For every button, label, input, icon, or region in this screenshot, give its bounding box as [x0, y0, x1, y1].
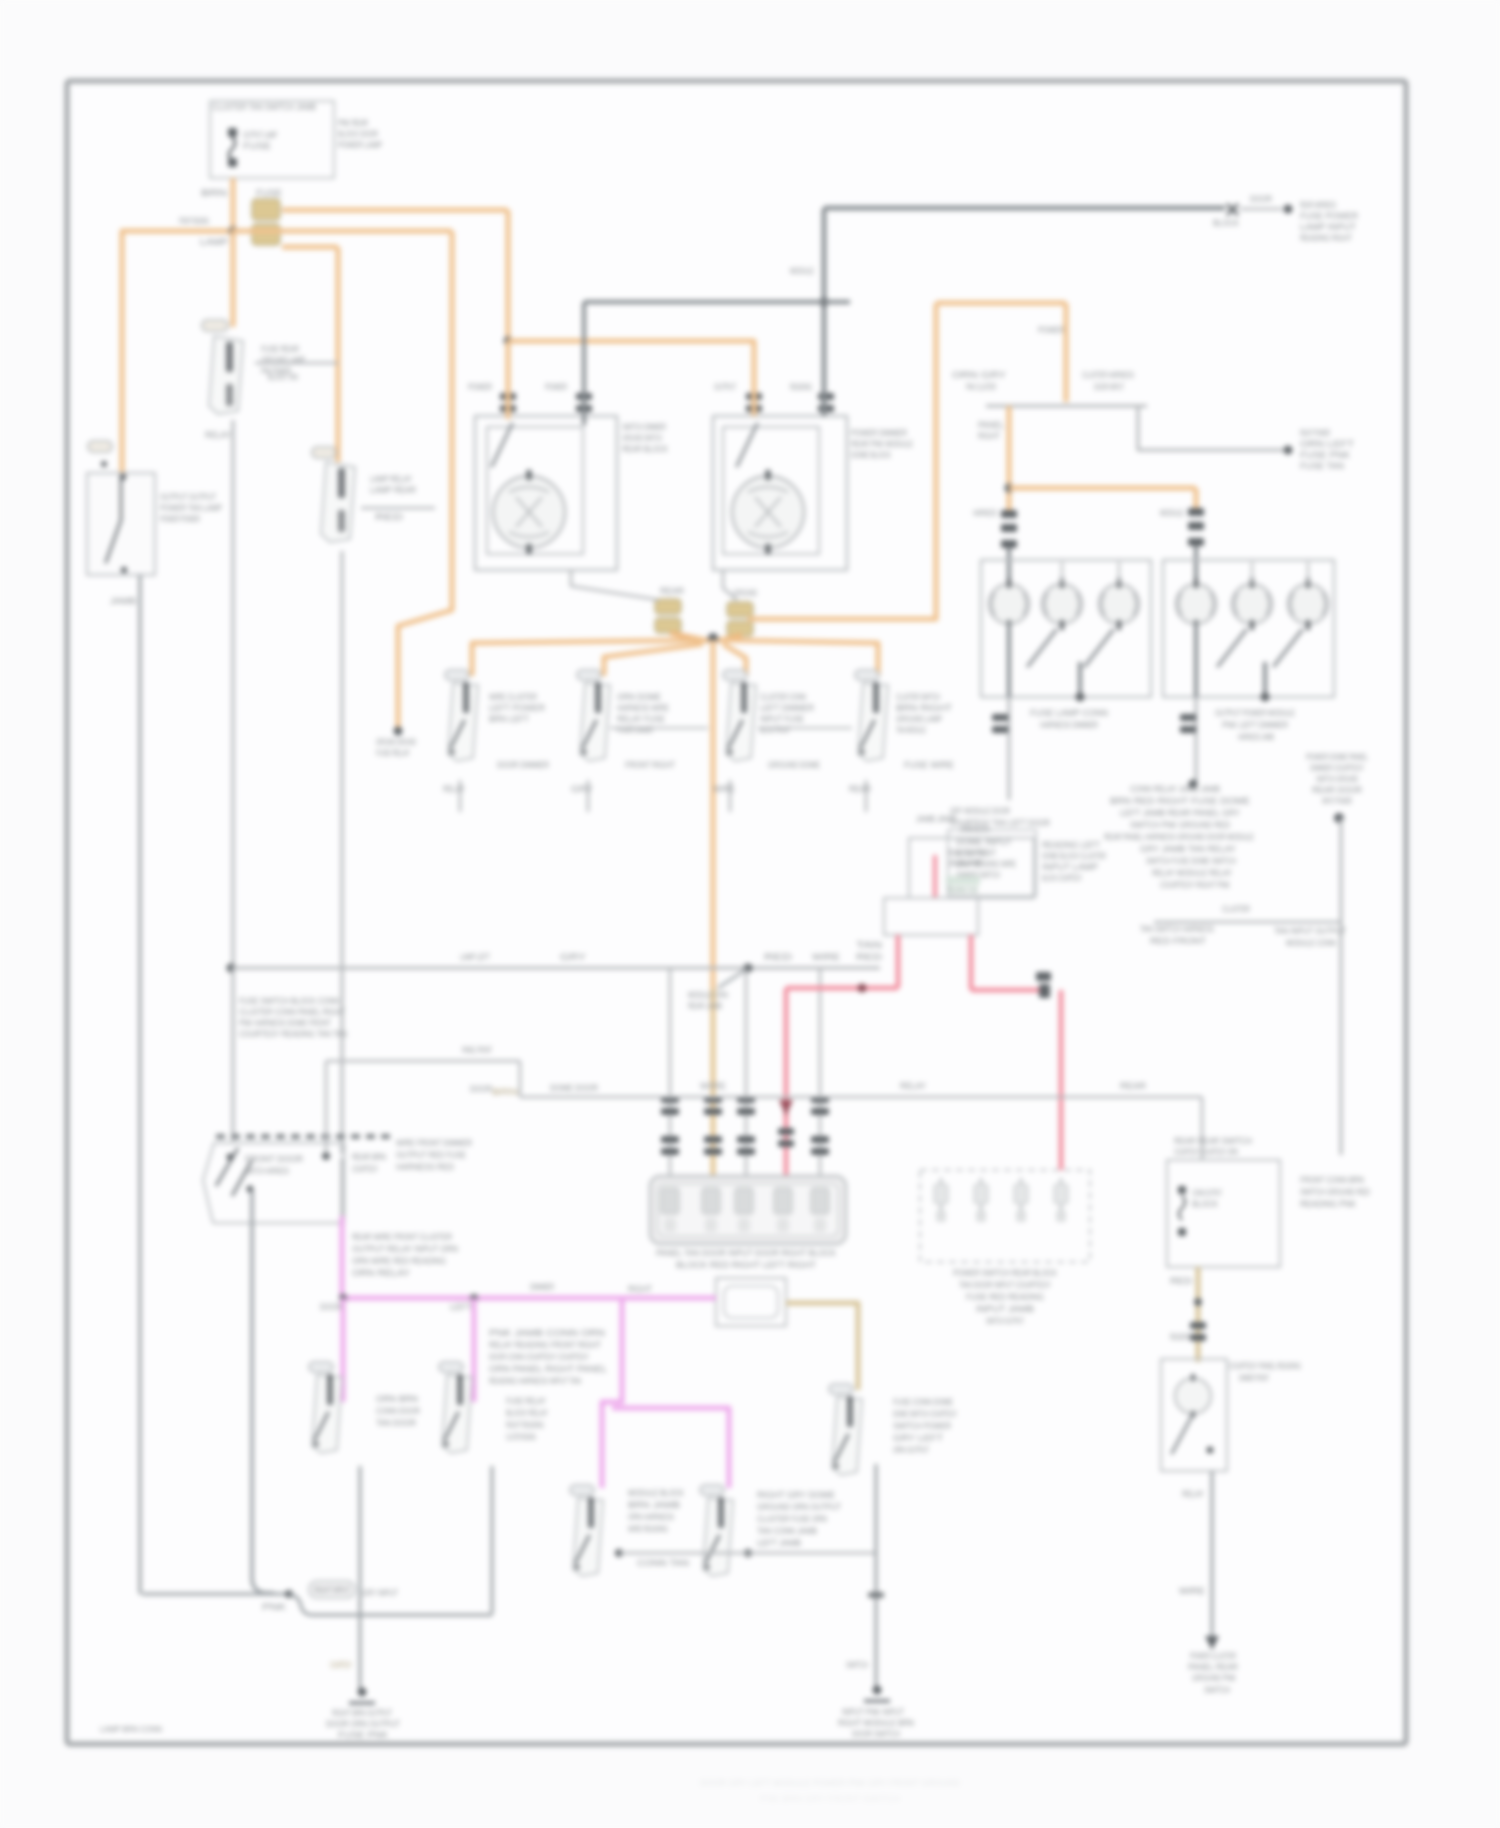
svg-text:FUSE RELAY: FUSE RELAY — [376, 748, 410, 758]
svg-text:COURTESY RIGHT PNK: COURTESY RIGHT PNK — [1160, 880, 1230, 890]
svg-text:BLOCK: BLOCK — [1192, 1199, 1218, 1209]
svg-text:DOOR: DOOR — [320, 1302, 342, 1312]
svg-text:ORN DOME: ORN DOME — [617, 692, 661, 702]
svg-text:TAN CONN JAMB: TAN CONN JAMB — [757, 1526, 817, 1536]
svg-text:DIMMER: DIMMER — [530, 1282, 554, 1292]
svg-text:LAMP REAR: LAMP REAR — [370, 485, 416, 495]
svg-text:ORN HARNESS: ORN HARNESS — [628, 1512, 674, 1522]
svg-text:GRY INPUT: GRY INPUT — [362, 1588, 398, 1598]
svg-text:TAN INPUT OUTPUT: TAN INPUT OUTPUT — [1274, 926, 1346, 936]
svg-text:ORN BRN: ORN BRN — [376, 1394, 418, 1404]
svg-text:BLOCK RELAY: BLOCK RELAY — [506, 1408, 548, 1418]
svg-text:ORN RELAY: ORN RELAY — [352, 1268, 410, 1278]
svg-text:CLUSTER FUSE ORN: CLUSTER FUSE ORN — [757, 1514, 827, 1524]
svg-text:PNK CLUSTER: PNK CLUSTER — [966, 382, 996, 392]
svg-text:SWITCH: SWITCH — [1204, 1685, 1230, 1695]
svg-text:DOME BLOCK CLUSTER: DOME BLOCK CLUSTER — [1042, 851, 1106, 861]
svg-text:FUSE CONN DOME: FUSE CONN DOME — [893, 1397, 953, 1407]
svg-text:LEFT: LEFT — [450, 1302, 472, 1312]
svg-text:HARNESS WIRE: HARNESS WIRE — [617, 703, 669, 713]
svg-text:READING PNK: READING PNK — [1300, 1199, 1356, 1209]
svg-text:HARNESS JAMB: HARNESS JAMB — [1238, 732, 1274, 742]
svg-text:PNK LEFT DIMMER: PNK LEFT DIMMER — [1222, 720, 1288, 730]
svg-text:JAMB: JAMB — [110, 596, 136, 606]
svg-text:RED: RED — [856, 952, 883, 962]
svg-text:BLOCK TAN: BLOCK TAN — [268, 372, 298, 382]
svg-text:INPUT JAMB: INPUT JAMB — [976, 1304, 1034, 1314]
svg-text:REAR PNK MODULE: REAR PNK MODULE — [851, 439, 913, 449]
svg-text:WIRE: WIRE — [713, 784, 735, 794]
svg-text:CLUSTER CONN PANEL RIGHT: CLUSTER CONN PANEL RIGHT — [239, 1007, 345, 1017]
svg-text:FUSE RELAY: FUSE RELAY — [506, 1396, 546, 1406]
svg-text:POWER DOME PANEL: POWER DOME PANEL — [1306, 752, 1368, 762]
svg-text:REAR BLOCK: REAR BLOCK — [622, 444, 668, 454]
svg-text:GROUND GROUND: GROUND GROUND — [376, 737, 416, 747]
svg-text:INPUT LAMP: INPUT LAMP — [1042, 862, 1098, 872]
svg-text:COURTESY: COURTESY — [330, 1660, 352, 1670]
svg-text:REAR: REAR — [660, 586, 684, 596]
svg-text:RIGHT: RIGHT — [628, 1284, 652, 1294]
svg-text:TAN MODULE: TAN MODULE — [896, 725, 926, 735]
svg-text:DOOR DIMMER: DOOR DIMMER — [497, 760, 549, 770]
svg-text:TAN: TAN — [856, 940, 882, 950]
svg-text:PNK JAMB CONN ORN: PNK JAMB CONN ORN — [489, 1328, 605, 1338]
svg-text:COURTESY PANEL READING: COURTESY PANEL READING — [1229, 1361, 1301, 1371]
svg-text:LAMP BRN CONN: LAMP BRN CONN — [100, 1725, 162, 1734]
svg-text:SWITCH GROUND RED: SWITCH GROUND RED — [1300, 1187, 1370, 1197]
svg-text:INPUT POWER: INPUT POWER — [1322, 796, 1352, 806]
svg-text:RELAY: RELAY — [205, 430, 231, 440]
svg-text:REAR HARNESS: REAR HARNESS — [1300, 200, 1336, 210]
svg-text:REAR WIRE FRONT CLUSTER: REAR WIRE FRONT CLUSTER — [352, 1232, 452, 1242]
svg-text:GROUND: GROUND — [733, 588, 757, 598]
svg-text:RELAY: RELAY — [443, 784, 465, 794]
svg-text:RELAY: RELAY — [1182, 1489, 1204, 1499]
svg-text:POWER SWITCH REAR BLOCK: POWER SWITCH REAR BLOCK — [953, 1268, 1057, 1278]
svg-text:ORN LEFT: ORN LEFT — [1300, 439, 1355, 449]
svg-text:RIGHT READING: RIGHT READING — [506, 1420, 544, 1430]
svg-text:BRN LEFT: BRN LEFT — [489, 714, 529, 724]
svg-text:PANEL FRONT: PANEL FRONT — [462, 1045, 492, 1055]
svg-text:LAMP: LAMP — [200, 237, 228, 247]
svg-text:REAR BRN: REAR BRN — [352, 1152, 386, 1162]
svg-text:REAR: REAR — [1120, 1081, 1147, 1091]
svg-text:DOOR: DOOR — [470, 1084, 492, 1094]
svg-text:GROUND ORN OUTPUT: GROUND ORN OUTPUT — [757, 1502, 841, 1512]
svg-text:WIRE READING: WIRE READING — [628, 1524, 668, 1534]
svg-text:CONN OUTPUT: CONN OUTPUT — [1192, 1188, 1222, 1198]
svg-text:RED FRONT: RED FRONT — [1150, 936, 1207, 946]
svg-text:GRY: GRY — [571, 784, 593, 794]
svg-text:BRN RED RIGHT FUSE DOME: BRN RED RIGHT FUSE DOME — [1110, 796, 1250, 806]
svg-text:REAR PANEL HARNESS GROUND DOOR: REAR PANEL HARNESS GROUND DOOR MODULE — [1104, 832, 1254, 842]
svg-text:PANEL REAR: PANEL REAR — [1188, 1662, 1238, 1672]
svg-text:BLOCK COURTESY: BLOCK COURTESY — [1042, 873, 1082, 883]
svg-text:GRY LEFT: GRY LEFT — [893, 1433, 944, 1443]
svg-text:RIGHT: RIGHT — [978, 431, 1000, 441]
svg-text:WIRE: WIRE — [700, 1081, 726, 1091]
svg-text:REAR JAMB: REAR JAMB — [688, 1001, 722, 1011]
svg-text:RELAY FUSE: RELAY FUSE — [617, 714, 665, 724]
svg-text:GRY JAMB TAN RELAY: GRY JAMB TAN RELAY — [1140, 844, 1236, 854]
svg-text:SWITCH PNK GROUND RED: SWITCH PNK GROUND RED — [1130, 820, 1230, 830]
svg-text:RIGHT INPUT: RIGHT INPUT — [314, 1585, 350, 1595]
svg-text:BLOCK: BLOCK — [1213, 218, 1239, 228]
svg-text:DOME BLOCK: DOME BLOCK — [851, 450, 891, 460]
svg-text:REAR DOOR: REAR DOOR — [1312, 785, 1362, 795]
svg-text:RED: RED — [1170, 1276, 1193, 1286]
svg-text:DOOR CONN COURTESY COURTESY: DOOR CONN COURTESY COURTESY — [489, 1352, 589, 1362]
svg-text:GROUND DOME: GROUND DOME — [768, 760, 820, 770]
svg-text:FUSE POWER: FUSE POWER — [1300, 211, 1358, 221]
svg-text:FRONT RIGHT: FRONT RIGHT — [625, 760, 675, 770]
svg-text:LAMP LEFT: LAMP LEFT — [460, 952, 490, 962]
svg-text:DIMMER FRONT: DIMMER FRONT — [1239, 1373, 1269, 1383]
svg-text:WIRE FRONT DIMMER: WIRE FRONT DIMMER — [396, 1138, 472, 1148]
svg-text:MODULE: MODULE — [790, 266, 814, 276]
svg-text:DOOR SWITCH: DOOR SWITCH — [852, 1729, 900, 1739]
svg-text:COURTESY: COURTESY — [352, 1164, 378, 1174]
svg-text:GROUND SWITCH: GROUND SWITCH — [622, 433, 662, 443]
svg-text:SWITCH: SWITCH — [846, 1660, 868, 1670]
svg-text:POWER POWER: POWER POWER — [160, 514, 200, 524]
svg-text:RIGHT MODULE BRN: RIGHT MODULE BRN — [838, 1718, 914, 1728]
svg-text:CLUSTER READING: CLUSTER READING — [506, 1432, 536, 1442]
svg-text:BRN: BRN — [201, 188, 227, 198]
svg-text:ORN OUTPUT: ORN OUTPUT — [893, 1445, 929, 1455]
svg-text:FUSE LAMP CONN: FUSE LAMP CONN — [1030, 708, 1108, 718]
svg-text:OUTPUT LAMP: OUTPUT LAMP — [243, 130, 277, 140]
svg-text:POWER CLUSTER: POWER CLUSTER — [1190, 1651, 1236, 1661]
svg-text:SWITCH HARNESS: SWITCH HARNESS — [245, 1166, 289, 1176]
svg-text:HARNESS: HARNESS — [973, 508, 997, 518]
svg-text:RIGHT GRY DOME: RIGHT GRY DOME — [757, 1490, 835, 1500]
svg-text:SWITCH GROUND: SWITCH GROUND — [1316, 774, 1358, 784]
svg-text:MODULE BLOCK: MODULE BLOCK — [628, 1488, 684, 1498]
svg-text:GRY MODULE DOOR: GRY MODULE DOOR — [950, 806, 1010, 816]
svg-text:OUTPUT RED FUSE: OUTPUT RED FUSE — [396, 1150, 466, 1160]
svg-text:RIGHT OUTPUT: RIGHT OUTPUT — [948, 848, 988, 858]
svg-text:POWER: POWER — [468, 382, 492, 392]
svg-text:OUTPUT OUTPUT: OUTPUT OUTPUT — [160, 492, 216, 502]
svg-text:LEFT JAMB REAR PANEL GRY: LEFT JAMB REAR PANEL GRY — [1120, 808, 1240, 818]
svg-text:CONN RELAY JAMB JAMB: CONN RELAY JAMB JAMB — [1130, 784, 1220, 794]
svg-text:WIRE: WIRE — [1179, 1586, 1205, 1596]
svg-text:WIRE CLUSTER: WIRE CLUSTER — [489, 692, 537, 702]
svg-text:REAR REAR SWITCH: REAR REAR SWITCH — [1174, 1136, 1252, 1146]
svg-text:LAMP INPUT: LAMP INPUT — [1300, 222, 1357, 232]
svg-text:POWER: POWER — [545, 382, 567, 392]
svg-text:RIGHT POWER: RIGHT POWER — [1300, 428, 1330, 438]
svg-text:LAMP RELAY: LAMP RELAY — [370, 474, 412, 484]
svg-text:ORN GRY: ORN GRY — [952, 370, 1006, 380]
svg-text:FUSE PNK: FUSE PNK — [338, 1730, 388, 1740]
svg-text:POWER DIMMER: POWER DIMMER — [617, 725, 653, 735]
svg-text:ORN WIRE RED READING: ORN WIRE RED READING — [352, 1256, 446, 1266]
svg-text:WIRE: WIRE — [812, 952, 840, 962]
svg-text:CLUSTER: CLUSTER — [1222, 904, 1250, 914]
svg-text:TAN SWITCH HARNESS: TAN SWITCH HARNESS — [1140, 924, 1214, 934]
svg-text:JAMB LAMP: JAMB LAMP — [948, 858, 982, 868]
svg-text:OUTPUT POWER MODULE: OUTPUT POWER MODULE — [1215, 708, 1295, 718]
svg-text:READING LEFT: READING LEFT — [1042, 840, 1100, 850]
svg-text:FRONT DOOR: FRONT DOOR — [245, 1154, 303, 1164]
svg-text:HARNESS DIMMER: HARNESS DIMMER — [1040, 720, 1098, 730]
svg-text:OUTPUT RELAY INPUT ORN: OUTPUT RELAY INPUT ORN — [352, 1244, 458, 1254]
svg-text:CONN DOOR: CONN DOOR — [376, 1406, 420, 1416]
svg-text:READING RIGHT: READING RIGHT — [1300, 233, 1352, 243]
svg-text:INPUT PNK INPUT: INPUT PNK INPUT — [842, 1707, 904, 1717]
svg-text:FUSE WIRE: FUSE WIRE — [904, 760, 954, 770]
svg-text:FUSE: FUSE — [256, 188, 282, 198]
svg-text:PNK REAR: PNK REAR — [338, 118, 368, 128]
svg-text:BRN JAMB: BRN JAMB — [628, 1500, 680, 1510]
svg-text:CLUSTER HARNESS: CLUSTER HARNESS — [1082, 370, 1134, 380]
svg-text:PANEL TAN DOOR INPUT DOOR RIGH: PANEL TAN DOOR INPUT DOOR RIGHT BLOCK — [656, 1248, 836, 1258]
svg-text:CONN TAN: CONN TAN — [637, 1558, 689, 1568]
svg-text:LEFT POWER: LEFT POWER — [489, 703, 545, 713]
svg-text:BLOCK RED RIGHT LEFT RIGHT: BLOCK RED RIGHT LEFT RIGHT — [676, 1260, 816, 1270]
svg-text:DOME SWITCH COURTESY: DOME SWITCH COURTESY — [893, 1409, 957, 1419]
svg-text:GRY: GRY — [560, 952, 586, 962]
svg-text:SWITCH FUSE DOME SWITCH: SWITCH FUSE DOME SWITCH — [1146, 856, 1236, 866]
svg-text:POWER LAMP: POWER LAMP — [338, 140, 382, 150]
svg-text:BRN: BRN — [492, 1087, 518, 1097]
svg-text:FUSE TAN: FUSE TAN — [1300, 461, 1344, 471]
svg-text:INPUT FUSE: INPUT FUSE — [760, 714, 804, 724]
svg-text:DOOR: DOOR — [1250, 194, 1272, 204]
svg-text:READING FUSE: READING FUSE — [948, 885, 978, 895]
svg-text:RED: RED — [764, 952, 793, 962]
svg-text:READING: READING — [1170, 1332, 1192, 1342]
svg-text:FRONT READING: FRONT READING — [179, 216, 209, 226]
svg-text:RELAY MODULE RELAY: RELAY MODULE RELAY — [1152, 868, 1232, 878]
svg-text:PNK: PNK — [262, 1602, 286, 1612]
svg-text:DOOR INPUT: DOOR INPUT — [1094, 382, 1124, 392]
svg-text:DOOR GRY LEFT MODULE POWER PNK: DOOR GRY LEFT MODULE POWER PNK GRY FRONT… — [700, 1778, 960, 1788]
svg-text:READING HARNESS INPUT TAN: READING HARNESS INPUT TAN — [489, 1376, 581, 1386]
svg-text:CLUSTER SWITCH: CLUSTER SWITCH — [896, 692, 940, 702]
svg-text:RELAY READING FRONT RIGHT: RELAY READING FRONT RIGHT — [489, 1340, 601, 1350]
svg-text:SWITCH DIMMER: SWITCH DIMMER — [622, 422, 666, 432]
svg-text:BRN RIGHT: BRN RIGHT — [896, 703, 953, 713]
svg-text:DOOR ORN OUTPUT: DOOR ORN OUTPUT — [326, 1719, 400, 1729]
svg-text:COURTESY COURTESY ORN: COURTESY COURTESY ORN — [1174, 1147, 1238, 1157]
svg-text:MODULE ORN: MODULE ORN — [688, 990, 728, 1000]
svg-text:TAN DOOR: TAN DOOR — [376, 1418, 416, 1428]
svg-text:FUSE RED READING: FUSE RED READING — [966, 1292, 1044, 1302]
svg-text:CLUSTER CONN: CLUSTER CONN — [760, 692, 806, 702]
svg-text:OUTPUT: OUTPUT — [714, 382, 736, 392]
svg-text:BLOCK DOOR: BLOCK DOOR — [338, 129, 378, 139]
svg-text:POWER: POWER — [1038, 325, 1064, 335]
svg-text:GROUND LAMP: GROUND LAMP — [896, 714, 942, 724]
svg-text:MODULE: MODULE — [1160, 508, 1184, 518]
svg-text:POWER DIMMER: POWER DIMMER — [851, 428, 907, 438]
svg-text:REAR: REAR — [849, 784, 871, 794]
svg-text:DIMMER COURTESY: DIMMER COURTESY — [1310, 763, 1364, 773]
svg-text:SWITCH POWER: SWITCH POWER — [893, 1421, 951, 1431]
svg-text:RED: RED — [375, 512, 404, 522]
svg-text:TAN DOOR INPUT COURTESY: TAN DOOR INPUT COURTESY — [959, 1280, 1051, 1290]
svg-text:FUSE PNK: FUSE PNK — [1300, 450, 1350, 460]
svg-text:FUSE: FUSE — [243, 141, 271, 151]
svg-text:COURTESY READING TAN TAN: COURTESY READING TAN TAN — [239, 1029, 347, 1039]
svg-text:RIGHT BRN OUTPUT: RIGHT BRN OUTPUT — [332, 1708, 392, 1718]
svg-text:DOME DOOR: DOME DOOR — [550, 1083, 598, 1093]
svg-text:GROUND PNK: GROUND PNK — [1192, 1673, 1236, 1683]
svg-text:FUSE SWITCH BLOCK CONN: FUSE SWITCH BLOCK CONN — [239, 996, 339, 1006]
svg-text:LEFT JAMB: LEFT JAMB — [757, 1538, 801, 1548]
svg-text:SWITCH OUTPUT: SWITCH OUTPUT — [986, 1316, 1024, 1326]
svg-text:POWER TAN LAMP: POWER TAN LAMP — [160, 503, 222, 513]
svg-text:FUSE REAR: FUSE REAR — [261, 344, 299, 354]
svg-text:MODULE CONN: MODULE CONN — [1286, 938, 1336, 948]
svg-text:CLUSTER TAN SWITCH JAMB: CLUSTER TAN SWITCH JAMB — [212, 102, 316, 112]
svg-text:HARNESS RED: HARNESS RED — [396, 1162, 454, 1172]
svg-text:PNK HARNESS DOME FRONT: PNK HARNESS DOME FRONT — [239, 1018, 331, 1028]
svg-text:JAMB BLOCK: JAMB BLOCK — [960, 824, 990, 834]
svg-text:FRONT CONN BRN: FRONT CONN BRN — [1300, 1175, 1364, 1185]
svg-text:JAMB JAMB: JAMB JAMB — [916, 814, 956, 824]
svg-text:PANEL: PANEL — [978, 420, 1004, 430]
svg-text:LEFT DIMMER: LEFT DIMMER — [760, 703, 814, 713]
svg-text:READING: READING — [790, 382, 812, 392]
svg-text:BLOCK FRONT: BLOCK FRONT — [760, 725, 790, 735]
svg-text:PNK BRN GRY FRONT SWITCH: PNK BRN GRY FRONT SWITCH — [760, 1794, 900, 1804]
svg-text:ORN PANEL RIGHT PANEL: ORN PANEL RIGHT PANEL — [489, 1364, 607, 1374]
svg-text:RELAY: RELAY — [900, 1081, 926, 1091]
